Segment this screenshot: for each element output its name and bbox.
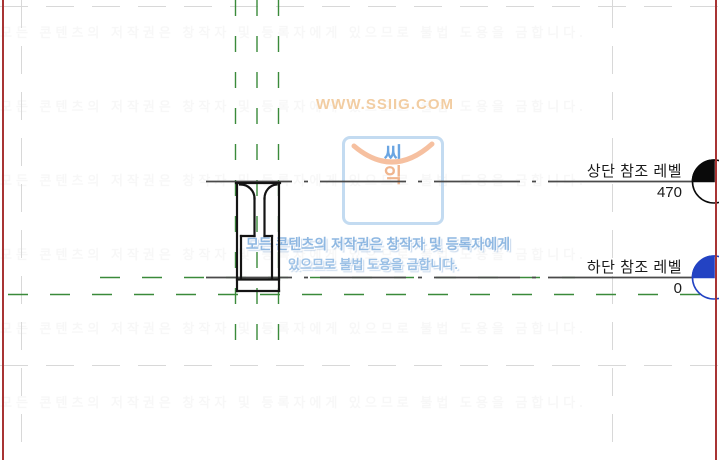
crop-border-right[interactable]: [715, 0, 717, 460]
lower-level-label[interactable]: 하단 참조 레벨: [482, 256, 682, 277]
upper-level-head-quadrant[interactable]: [693, 160, 715, 182]
lower-level-head-quadrant[interactable]: [693, 256, 715, 278]
profile-funnel-arc-right[interactable]: [264, 185, 276, 199]
profile-funnel-arc-left[interactable]: [240, 184, 255, 198]
crop-guide-lines[interactable]: [0, 0, 719, 460]
lower-level-value[interactable]: 0: [482, 280, 682, 297]
drawing-canvas: 모든 콘텐츠의 저작권은 창작자 및 등록자에게 있으므로 불법 도용을 금합니…: [0, 0, 719, 460]
crop-border-left[interactable]: [2, 0, 4, 460]
upper-level-value[interactable]: 470: [482, 184, 682, 201]
upper-level-label[interactable]: 상단 참조 레벨: [482, 160, 682, 181]
drawing-svg: [0, 0, 719, 460]
profile-sketch[interactable]: [236, 183, 280, 291]
